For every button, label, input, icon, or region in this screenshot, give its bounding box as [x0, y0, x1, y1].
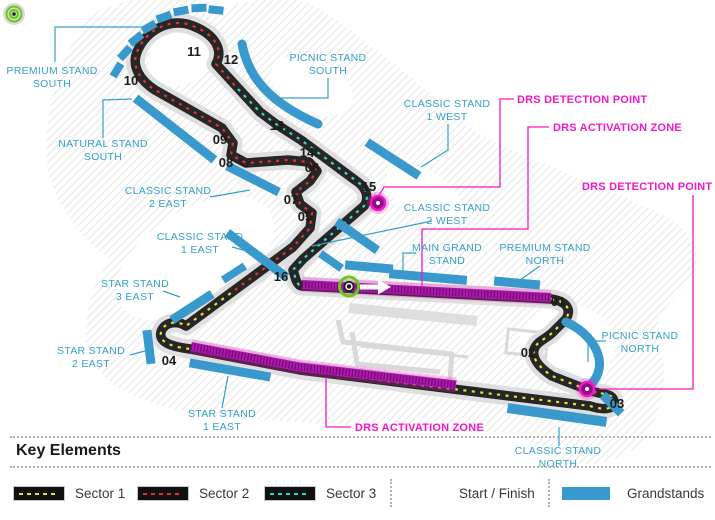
grandstand-bar: [191, 4, 206, 13]
stand-label: 3 EAST: [116, 291, 154, 303]
stand-label: STAND: [429, 255, 465, 267]
corner-number: 02: [521, 345, 535, 360]
stand-label: NATURAL STAND: [58, 138, 148, 150]
sector-2-swatch: [137, 486, 189, 501]
stand-label: SOUTH: [309, 65, 347, 77]
corner-number: 11: [187, 44, 201, 59]
stand-label: CLASSIC STAND: [125, 185, 212, 197]
corner-number: 08: [219, 155, 233, 170]
stand-label: NORTH: [621, 343, 660, 355]
stand-label: 1 EAST: [181, 244, 219, 256]
stand-label: PICNIC STAND: [290, 52, 367, 64]
corner-number: 13: [270, 118, 284, 133]
stand-label: 1 WEST: [427, 111, 468, 123]
stand-label: PREMIUM STAND: [6, 65, 97, 77]
stand-label: NORTH: [526, 255, 565, 267]
sector-3-dash: [270, 493, 310, 495]
corner-number: 05: [298, 209, 312, 224]
grandstands-swatch: [562, 487, 610, 500]
legend-heading-divider: [10, 466, 711, 468]
drs-detection-marker-t03: [576, 378, 598, 400]
sector-3-swatch: [264, 486, 316, 501]
drs-activation-label: DRS ACTIVATION ZONE: [355, 422, 484, 434]
legend-label-sector-1: Sector 1: [75, 486, 125, 501]
stand-label: STAR STAND: [188, 408, 256, 420]
legend-label-start-finish: Start / Finish: [459, 486, 535, 501]
corner-number: 15: [362, 179, 376, 194]
legend-label-sector-3: Sector 3: [326, 486, 376, 501]
start-finish-icon: [0, 0, 28, 28]
corner-number: 03: [610, 396, 624, 411]
corner-number: 16: [274, 269, 288, 284]
corner-number: 12: [224, 52, 238, 67]
stand-label: NORTH: [539, 458, 578, 470]
legend-label-grandstands: Grandstands: [627, 486, 704, 501]
grandstand-bar: [208, 5, 224, 15]
corner-number: 07: [284, 192, 298, 207]
stand-label: PREMIUM STAND: [499, 242, 590, 254]
corner-number: 10: [124, 73, 138, 88]
corner-number: 01: [551, 294, 565, 309]
corner-number: 09: [213, 132, 227, 147]
stand-label: 2 EAST: [72, 358, 110, 370]
stand-label: STAR STAND: [101, 278, 169, 290]
drs-detection-label: DRS DETECTION POINT: [517, 94, 647, 106]
sector-1-dash: [19, 493, 59, 495]
legend-label-sector-2: Sector 2: [199, 486, 249, 501]
legend-separator: [548, 479, 550, 507]
drs-detection-label: DRS DETECTION POINT: [582, 181, 712, 193]
corner-number: 06: [305, 160, 319, 175]
stand-label: STAR STAND: [57, 345, 125, 357]
stand-label: CLASSIC STAND: [157, 231, 244, 243]
stand-label: SOUTH: [84, 151, 122, 163]
legend-top-divider: [10, 436, 711, 438]
legend-separator: [390, 479, 392, 507]
stand-label: CLASSIC STAND: [404, 202, 491, 214]
stand-label: 2 WEST: [427, 215, 468, 227]
corner-number: 04: [162, 353, 177, 368]
drs-detection-marker-t15: [367, 192, 389, 214]
circuit-map-page: PREMIUM STAND SOUTH NATURAL STAND SOUTH …: [0, 0, 715, 520]
corner-number: 14: [300, 145, 315, 160]
stand-label: SOUTH: [33, 78, 71, 90]
sector-2-dash: [143, 493, 183, 495]
stand-label: PICNIC STAND: [602, 330, 679, 342]
sector-1-swatch: [13, 486, 65, 501]
stand-label: 2 EAST: [149, 198, 187, 210]
stand-label: 1 EAST: [203, 421, 241, 433]
stand-label: CLASSIC STAND: [404, 98, 491, 110]
drs-activation-label: DRS ACTIVATION ZONE: [553, 122, 682, 134]
stand-label: CLASSIC STAND: [515, 445, 602, 457]
legend-heading: Key Elements: [16, 442, 121, 460]
stand-label: MAIN GRAND: [412, 242, 482, 254]
